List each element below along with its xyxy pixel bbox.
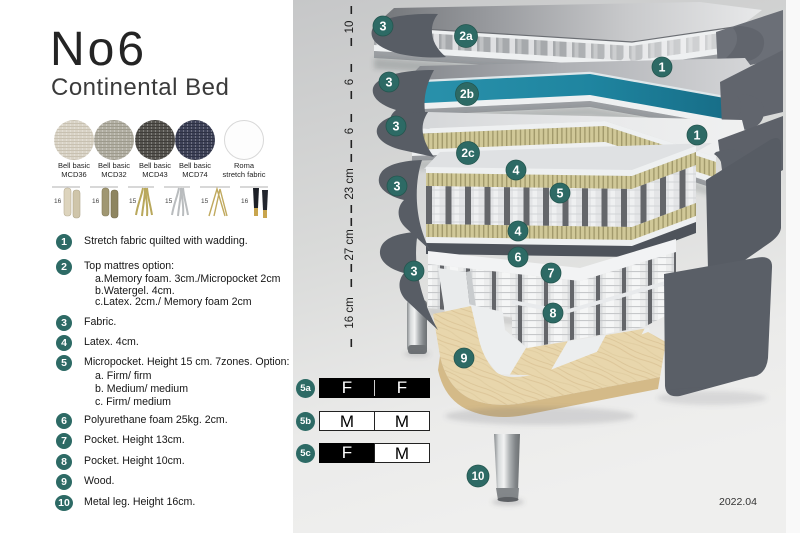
svg-text:16: 16 <box>92 198 100 205</box>
svg-text:4: 4 <box>515 224 522 238</box>
svg-text:2a: 2a <box>459 29 473 43</box>
svg-text:3: 3 <box>380 19 387 33</box>
svg-text:8: 8 <box>550 306 557 320</box>
svg-text:15: 15 <box>165 198 173 205</box>
svg-text:6: 6 <box>344 79 356 85</box>
svg-text:1: 1 <box>659 60 666 74</box>
svg-text:2c: 2c <box>461 146 475 160</box>
svg-text:5: 5 <box>557 186 564 200</box>
svg-text:27 cm: 27 cm <box>344 229 356 260</box>
svg-text:15: 15 <box>201 198 209 205</box>
svg-text:3: 3 <box>394 179 401 193</box>
svg-text:3: 3 <box>386 75 393 89</box>
svg-text:3: 3 <box>393 119 400 133</box>
svg-text:10: 10 <box>344 21 356 34</box>
svg-text:16: 16 <box>54 198 62 205</box>
svg-text:10: 10 <box>472 471 485 483</box>
svg-text:6: 6 <box>515 250 522 264</box>
svg-text:6: 6 <box>344 128 356 134</box>
svg-text:4: 4 <box>513 163 520 177</box>
svg-text:7: 7 <box>548 266 555 280</box>
svg-text:1: 1 <box>694 128 701 142</box>
svg-text:16: 16 <box>241 198 249 205</box>
svg-text:2b: 2b <box>460 87 474 101</box>
svg-text:15: 15 <box>129 198 137 205</box>
svg-text:3: 3 <box>411 264 418 278</box>
svg-text:16 cm: 16 cm <box>344 297 356 328</box>
svg-text:9: 9 <box>461 351 468 365</box>
svg-text:23 cm: 23 cm <box>344 168 356 199</box>
